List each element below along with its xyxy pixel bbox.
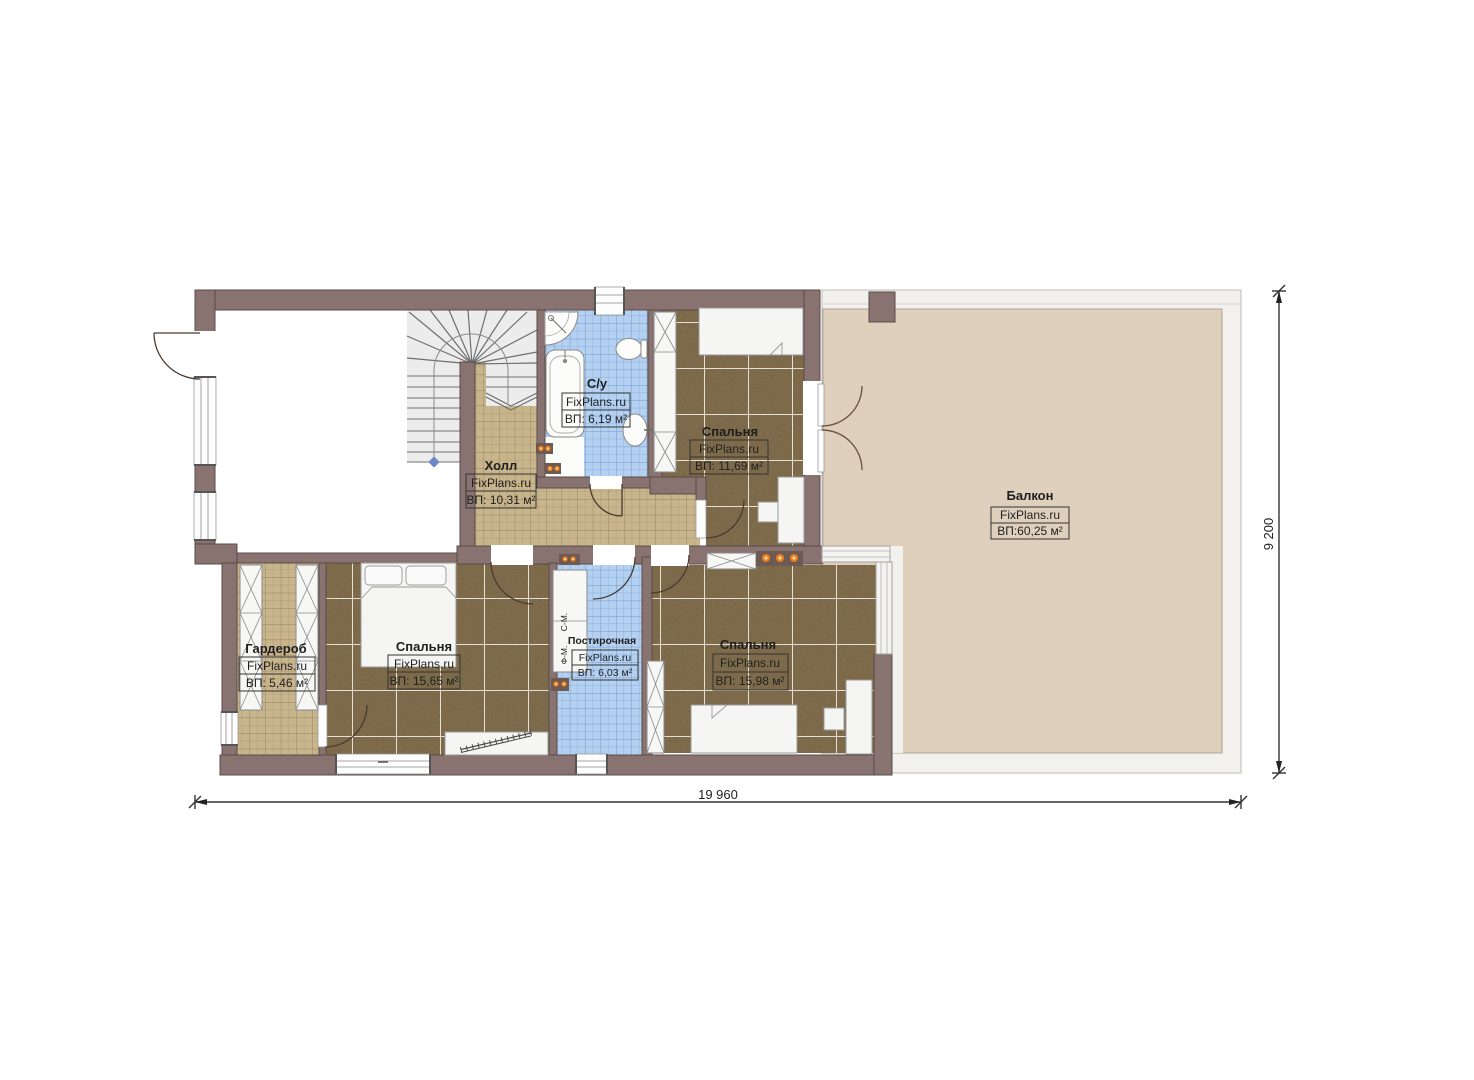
svg-text:С-М.: С-М. [559,613,569,631]
svg-text:ВП: 6,19 м²: ВП: 6,19 м² [565,412,627,426]
svg-text:FixPlans.ru: FixPlans.ru [699,442,759,456]
svg-text:Постирочная: Постирочная [568,635,636,647]
svg-text:9 200: 9 200 [1261,518,1276,551]
svg-text:FixPlans.ru: FixPlans.ru [579,652,632,664]
svg-text:Балкон: Балкон [1007,488,1054,503]
svg-text:ВП: 6,03 м²: ВП: 6,03 м² [578,667,633,679]
svg-text:Спальня: Спальня [702,424,758,439]
svg-text:ВП: 5,46 м²: ВП: 5,46 м² [246,676,308,690]
svg-text:Гардероб: Гардероб [245,641,306,656]
svg-text:FixPlans.ru: FixPlans.ru [471,476,531,490]
svg-text:ВП:60,25 м²: ВП:60,25 м² [997,524,1063,538]
svg-text:ВП: 15,65 м²: ВП: 15,65 м² [390,674,459,688]
svg-text:Спальня: Спальня [720,637,776,652]
svg-text:FixPlans.ru: FixPlans.ru [394,657,454,671]
svg-text:Ф-М.: Ф-М. [559,646,569,665]
svg-text:FixPlans.ru: FixPlans.ru [247,659,307,673]
svg-text:19 960: 19 960 [698,787,738,802]
svg-text:ВП: 11,69 м²: ВП: 11,69 м² [695,459,763,473]
svg-text:Спальня: Спальня [396,639,452,654]
svg-text:FixPlans.ru: FixPlans.ru [566,395,626,409]
svg-text:С/у: С/у [587,376,608,391]
svg-text:ВП: 15,98 м²: ВП: 15,98 м² [716,674,785,688]
svg-text:FixPlans.ru: FixPlans.ru [1000,508,1060,522]
svg-text:FixPlans.ru: FixPlans.ru [720,656,780,670]
svg-text:Холл: Холл [485,458,518,473]
svg-text:ВП: 10,31 м²: ВП: 10,31 м² [467,493,536,507]
